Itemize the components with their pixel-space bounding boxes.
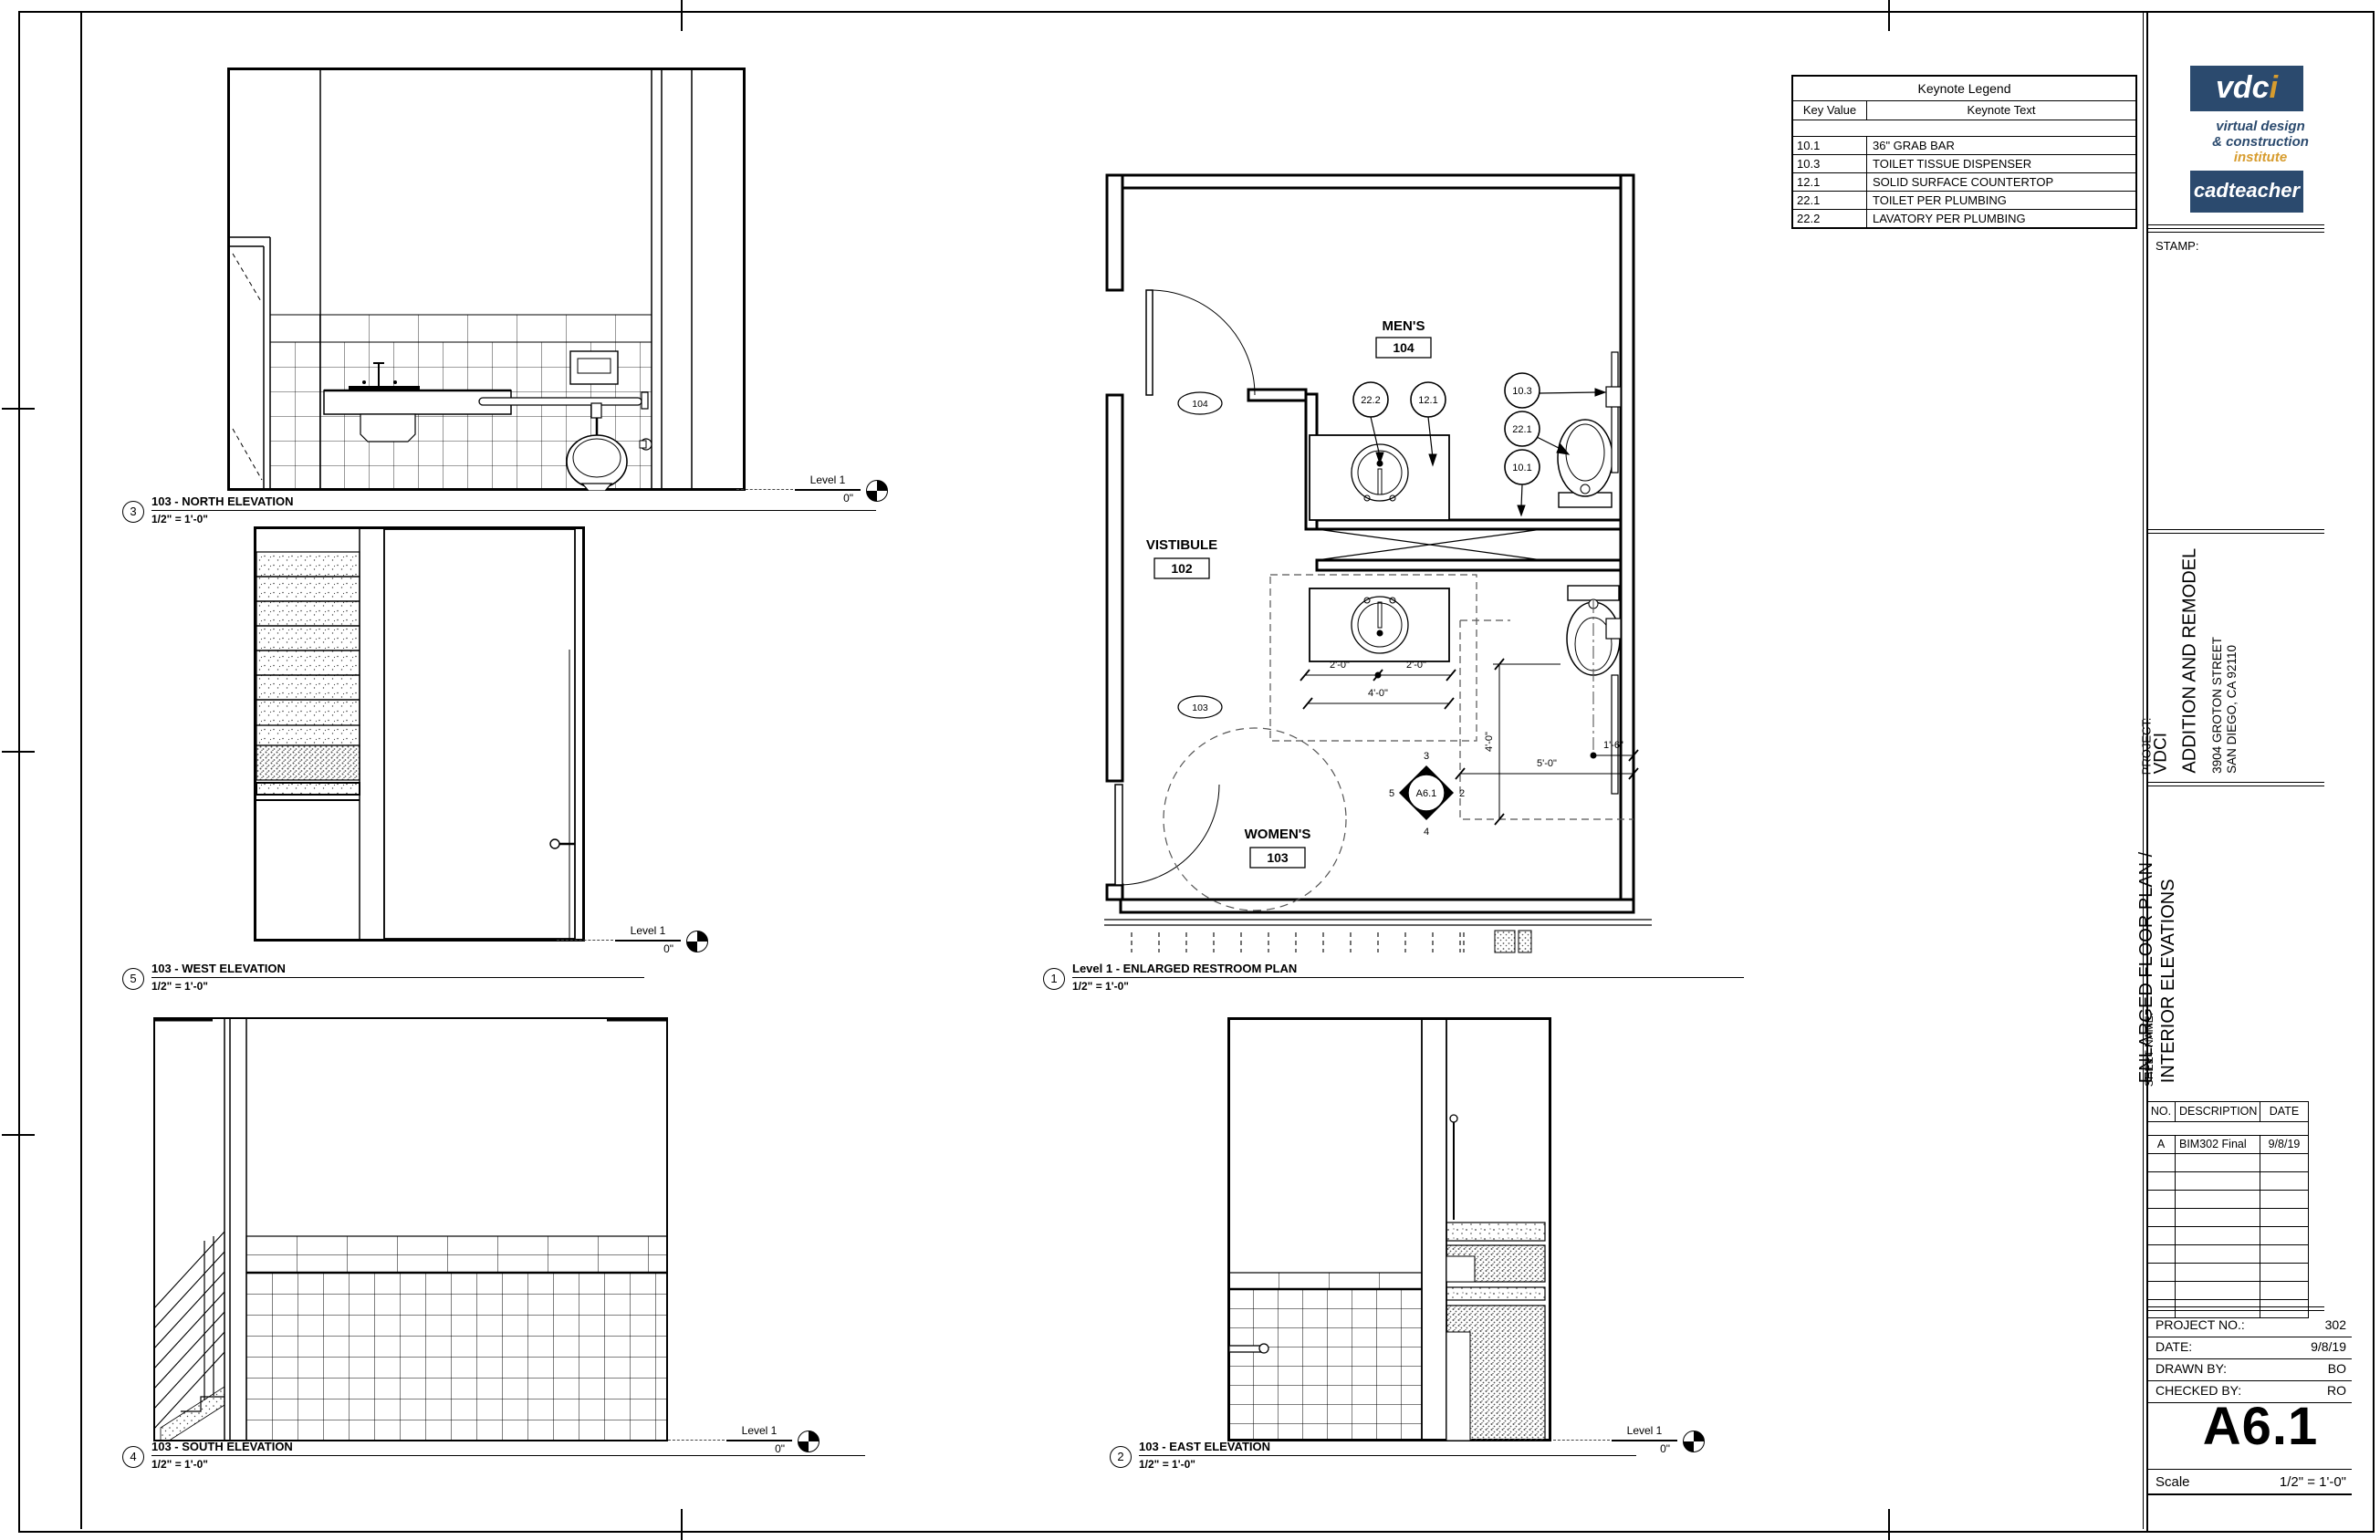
level-name: Level 1 xyxy=(1612,1424,1677,1441)
revision-row-empty xyxy=(2146,1227,2309,1245)
room-name: VISTIBULE xyxy=(1146,537,1217,553)
keynote-key: 22.2 xyxy=(1793,210,1867,227)
callout-sheet: A6.1 xyxy=(1416,788,1437,799)
stair-section xyxy=(153,1017,246,1441)
keynote-tag: 22.2 xyxy=(1361,395,1380,406)
tagline-line2: & construction xyxy=(2148,134,2373,150)
edge-tick xyxy=(2,408,35,410)
level-lead-line xyxy=(1553,1440,1610,1441)
edge-tick xyxy=(681,0,683,31)
keynote-key: 10.1 xyxy=(1793,137,1867,154)
callout-view-right: 2 xyxy=(1459,788,1465,799)
project-no-label: PROJECT NO.: xyxy=(2156,1316,2245,1335)
logo-tagline: virtual design & construction institute xyxy=(2148,119,2373,165)
room-name: WOMEN'S xyxy=(1245,827,1311,842)
revision-row-empty xyxy=(2146,1209,2309,1227)
view-title-text: 103 - EAST ELEVATION xyxy=(1139,1440,1636,1455)
keynote-text: TOILET PER PLUMBING xyxy=(1867,192,2135,209)
drawn-by-row: DRAWN BY: BO xyxy=(2148,1359,2352,1381)
revision-table: NO. DESCRIPTION DATE A BIM302 Final 9/8/… xyxy=(2146,1101,2309,1318)
scale-label: Scale xyxy=(2156,1472,2190,1492)
separator-line xyxy=(2148,782,2324,783)
level-datum-icon xyxy=(798,1431,819,1452)
separator-line xyxy=(2148,1306,2324,1307)
dim-label: 4'-0" xyxy=(1368,688,1388,699)
view-title-text: 103 - NORTH ELEVATION xyxy=(151,494,876,510)
revision-row-empty xyxy=(2146,1282,2309,1300)
date-label: DATE: xyxy=(2156,1337,2192,1357)
drawing-sheet: Keynote Legend Key Value Keynote Text 10… xyxy=(0,0,2380,1540)
binding-edge-line xyxy=(80,11,82,1529)
separator-line xyxy=(2148,786,2324,786)
level-lead-line xyxy=(557,940,613,941)
edge-tick xyxy=(1888,1509,1890,1540)
vestibule-door xyxy=(1146,290,1255,395)
tissue-dispenser xyxy=(570,351,618,384)
mens-grab-bar xyxy=(1612,352,1618,473)
separator-line xyxy=(2148,228,2324,229)
east-elevation-drawing xyxy=(1227,1017,1551,1441)
level-elevation: 0" xyxy=(795,492,853,505)
keynote-tag: 10.3 xyxy=(1512,386,1531,397)
project-no-row: PROJECT NO.: 302 xyxy=(2148,1316,2352,1337)
cadteacher-logo: cadteacher xyxy=(2190,171,2303,213)
sheet-name: ENLARGED FLOOR PLAN / INTERIOR ELEVATION… xyxy=(2136,852,2179,1083)
scale-value: 1/2" = 1'-0" xyxy=(2280,1472,2346,1492)
level-name: Level 1 xyxy=(615,924,681,942)
mens-tissue-dispenser xyxy=(1606,387,1621,407)
view-number-west: 5 xyxy=(122,968,144,990)
cadteacher-logo-text: cadteacher xyxy=(2194,179,2300,202)
level-marker-south: Level 1 0" xyxy=(721,1424,823,1461)
womens-door xyxy=(1115,785,1219,885)
keynote-text: SOLID SURFACE COUNTERTOP xyxy=(1867,173,2135,191)
dim-label: 5'-0" xyxy=(1537,758,1557,769)
vdci-logo-accent: i xyxy=(2270,70,2278,105)
level-elevation: 0" xyxy=(726,1442,785,1455)
keynote-text: TOILET TISSUE DISPENSER xyxy=(1867,155,2135,172)
keynote-legend-title: Keynote Legend xyxy=(1793,77,2135,101)
separator-line xyxy=(2148,533,2324,534)
keynote-text: 36" GRAB BAR xyxy=(1867,137,2135,154)
dimensions xyxy=(1300,659,1638,825)
enlarged-restroom-plan-drawing: 2'-0" 2'-0" 4'-0" 1'-6" 5'-0" 4'-0" 22.2… xyxy=(1086,164,1688,985)
dim-label: 1'-6" xyxy=(1603,740,1623,751)
separator-line xyxy=(2148,224,2324,225)
rev-date: 9/8/19 xyxy=(2260,1136,2308,1153)
callout-view-bottom: 4 xyxy=(1424,827,1429,838)
view-title-plan: Level 1 - ENLARGED RESTROOM PLAN 1/2" = … xyxy=(1072,962,1744,993)
tiled-wall xyxy=(246,1236,668,1441)
room-number: 104 xyxy=(1393,340,1414,355)
scale-row: Scale 1/2" = 1'-0" xyxy=(2148,1472,2352,1495)
rev-no: A xyxy=(2147,1136,2176,1153)
title-block: vdci virtual design & construction insti… xyxy=(2146,11,2375,1533)
wall-edge-lines xyxy=(360,526,384,942)
sheet-name-line2: INTERIOR ELEVATIONS xyxy=(2157,852,2179,1083)
elevation-callout: A6.1 3 2 4 5 xyxy=(1389,751,1465,838)
date-row: DATE: 9/8/19 xyxy=(2148,1337,2352,1359)
paper-holder xyxy=(640,439,652,450)
mens-lavatory xyxy=(1310,435,1449,520)
keynote-key: 10.3 xyxy=(1793,155,1867,172)
north-elevation-drawing xyxy=(227,68,746,491)
rev-col-no: NO. xyxy=(2147,1102,2176,1121)
vdci-logo-text: vdc xyxy=(2216,70,2270,105)
room-number: 102 xyxy=(1171,561,1193,576)
level-lead-line xyxy=(668,1440,725,1441)
level-datum-icon xyxy=(686,931,708,952)
revision-row-empty xyxy=(2146,1191,2309,1209)
rev-description: BIM302 Final xyxy=(2176,1136,2260,1153)
keynote-row: 10.3 TOILET TISSUE DISPENSER xyxy=(1793,155,2135,173)
revision-row-empty xyxy=(2146,1154,2309,1172)
view-title-text: 103 - WEST ELEVATION xyxy=(151,962,644,977)
view-title-north: 103 - NORTH ELEVATION 1/2" = 1'-0" xyxy=(151,494,876,525)
womens-lavatory xyxy=(1310,588,1449,661)
date-value: 9/8/19 xyxy=(2311,1337,2346,1357)
room-tag-womens: WOMEN'S 103 xyxy=(1245,827,1311,868)
keynote-spacer-row xyxy=(1793,120,2135,137)
separator-line xyxy=(2148,529,2324,530)
rev-col-date: DATE xyxy=(2260,1102,2308,1121)
tagline-line1: virtual design xyxy=(2148,119,2373,134)
wall-edge-lines xyxy=(1422,1017,1446,1441)
keynote-legend-header: Key Value Keynote Text xyxy=(1793,101,2135,120)
grab-bar-end xyxy=(1229,1344,1268,1353)
project-address1: 3904 GROTON STREET xyxy=(2210,637,2225,774)
dim-label: 4'-0" xyxy=(1484,732,1495,752)
keynote-row: 22.2 LAVATORY PER PLUMBING xyxy=(1793,210,2135,227)
keynote-col-key: Key Value xyxy=(1793,101,1867,120)
door-tag-number: 103 xyxy=(1192,702,1208,713)
vdci-logo: vdci xyxy=(2190,66,2303,111)
keynote-col-text: Keynote Text xyxy=(1867,101,2135,120)
door-tag-104: 104 xyxy=(1178,392,1222,414)
south-elevation-drawing xyxy=(153,1017,668,1441)
project-client: VDCI xyxy=(2152,733,2172,774)
separator-line xyxy=(2148,232,2324,233)
separator-line xyxy=(2148,1310,2324,1311)
revision-row-empty xyxy=(2146,1264,2309,1282)
level-name: Level 1 xyxy=(726,1424,792,1441)
stamp-label: STAMP: xyxy=(2156,239,2198,253)
separator-line xyxy=(2148,1469,2352,1470)
callout-view-top: 3 xyxy=(1424,751,1429,762)
edge-tick xyxy=(2,1134,35,1136)
level-marker-north: Level 1 0" xyxy=(789,473,892,510)
level-name: Level 1 xyxy=(795,473,861,491)
level-marker-west: Level 1 0" xyxy=(610,924,712,961)
tiled-wall xyxy=(1229,1273,1422,1441)
view-scale-text: 1/2" = 1'-0" xyxy=(1139,1456,1636,1471)
keynote-tag: 22.1 xyxy=(1512,424,1531,435)
level-elevation: 0" xyxy=(1612,1442,1670,1455)
tile-band-large xyxy=(270,315,652,342)
level-marker-east: Level 1 0" xyxy=(1606,1424,1708,1461)
edge-tick xyxy=(1888,0,1890,31)
project-title: ADDITION AND REMODEL xyxy=(2179,548,2201,774)
revision-row: A BIM302 Final 9/8/19 xyxy=(2146,1135,2309,1154)
keynote-row: 10.1 36" GRAB BAR xyxy=(1793,137,2135,155)
room-name: MEN'S xyxy=(1383,318,1425,334)
view-title-west: 103 - WEST ELEVATION 1/2" = 1'-0" xyxy=(151,962,644,993)
drawn-by-label: DRAWN BY: xyxy=(2156,1359,2227,1379)
view-scale-text: 1/2" = 1'-0" xyxy=(1072,978,1744,993)
keynote-key: 12.1 xyxy=(1793,173,1867,191)
door-tag-103: 103 xyxy=(1178,696,1222,718)
view-scale-text: 1/2" = 1'-0" xyxy=(151,511,876,525)
sheet-name-line1: ENLARGED FLOOR PLAN / xyxy=(2136,852,2158,1083)
sheet-number: A6.1 xyxy=(2148,1396,2373,1457)
project-address: 3904 GROTON STREET SAN DIEGO, CA 92110 xyxy=(2210,637,2239,774)
keynote-text: LAVATORY PER PLUMBING xyxy=(1867,210,2135,227)
view-title-east: 103 - EAST ELEVATION 1/2" = 1'-0" xyxy=(1139,1440,1636,1471)
view-number-south: 4 xyxy=(122,1446,144,1468)
drawn-by-value: BO xyxy=(2328,1359,2346,1379)
keynote-tag: 12.1 xyxy=(1418,395,1437,406)
west-elevation-drawing xyxy=(254,526,585,942)
keynote-row: 12.1 SOLID SURFACE COUNTERTOP xyxy=(1793,173,2135,192)
room-tag-mens: MEN'S 104 xyxy=(1376,318,1431,358)
view-scale-text: 1/2" = 1'-0" xyxy=(151,978,644,993)
view-title-text: Level 1 - ENLARGED RESTROOM PLAN xyxy=(1072,962,1744,977)
masonry-band-column xyxy=(256,552,360,800)
door-elevation xyxy=(384,529,575,939)
level-datum-icon xyxy=(1683,1431,1705,1452)
revision-header: NO. DESCRIPTION DATE xyxy=(2146,1101,2309,1122)
tagline-line3: institute xyxy=(2148,150,2373,165)
keynote-row: 22.1 TOILET PER PLUMBING xyxy=(1793,192,2135,210)
dim-label: 2'-0" xyxy=(1406,660,1426,671)
view-number-plan: 1 xyxy=(1043,968,1065,990)
level-elevation: 0" xyxy=(615,942,673,955)
room-number: 103 xyxy=(1267,850,1289,865)
edge-tick xyxy=(2,751,35,753)
chase-x-brace xyxy=(1317,529,1542,560)
level-lead-line xyxy=(736,489,793,490)
mens-toilet xyxy=(1558,420,1613,507)
project-address2: SAN DIEGO, CA 92110 xyxy=(2225,637,2239,774)
dim-label: 2'-0" xyxy=(1330,660,1350,671)
keynote-key: 22.1 xyxy=(1793,192,1867,209)
view-number-north: 3 xyxy=(122,501,144,523)
level-datum-icon xyxy=(866,480,888,502)
callout-view-left: 5 xyxy=(1389,788,1394,799)
womens-grab-bar xyxy=(1612,675,1618,794)
stair-landing-section xyxy=(1446,1115,1545,1441)
womens-tissue-dispenser xyxy=(1606,619,1621,639)
view-number-east: 2 xyxy=(1110,1446,1132,1468)
keynote-tag: 10.1 xyxy=(1512,463,1531,473)
keynote-legend: Keynote Legend Key Value Keynote Text 10… xyxy=(1791,75,2137,229)
room-tag-vestibule: VISTIBULE 102 xyxy=(1146,537,1217,578)
edge-tick xyxy=(681,1509,683,1540)
revision-row-empty xyxy=(2146,1172,2309,1191)
exterior-wall-detail xyxy=(1104,920,1652,952)
project-no-value: 302 xyxy=(2325,1316,2346,1335)
rev-col-description: DESCRIPTION xyxy=(2176,1102,2260,1121)
door-tag-number: 104 xyxy=(1192,399,1208,410)
revision-row-empty xyxy=(2146,1245,2309,1264)
revision-gap xyxy=(2146,1122,2309,1135)
